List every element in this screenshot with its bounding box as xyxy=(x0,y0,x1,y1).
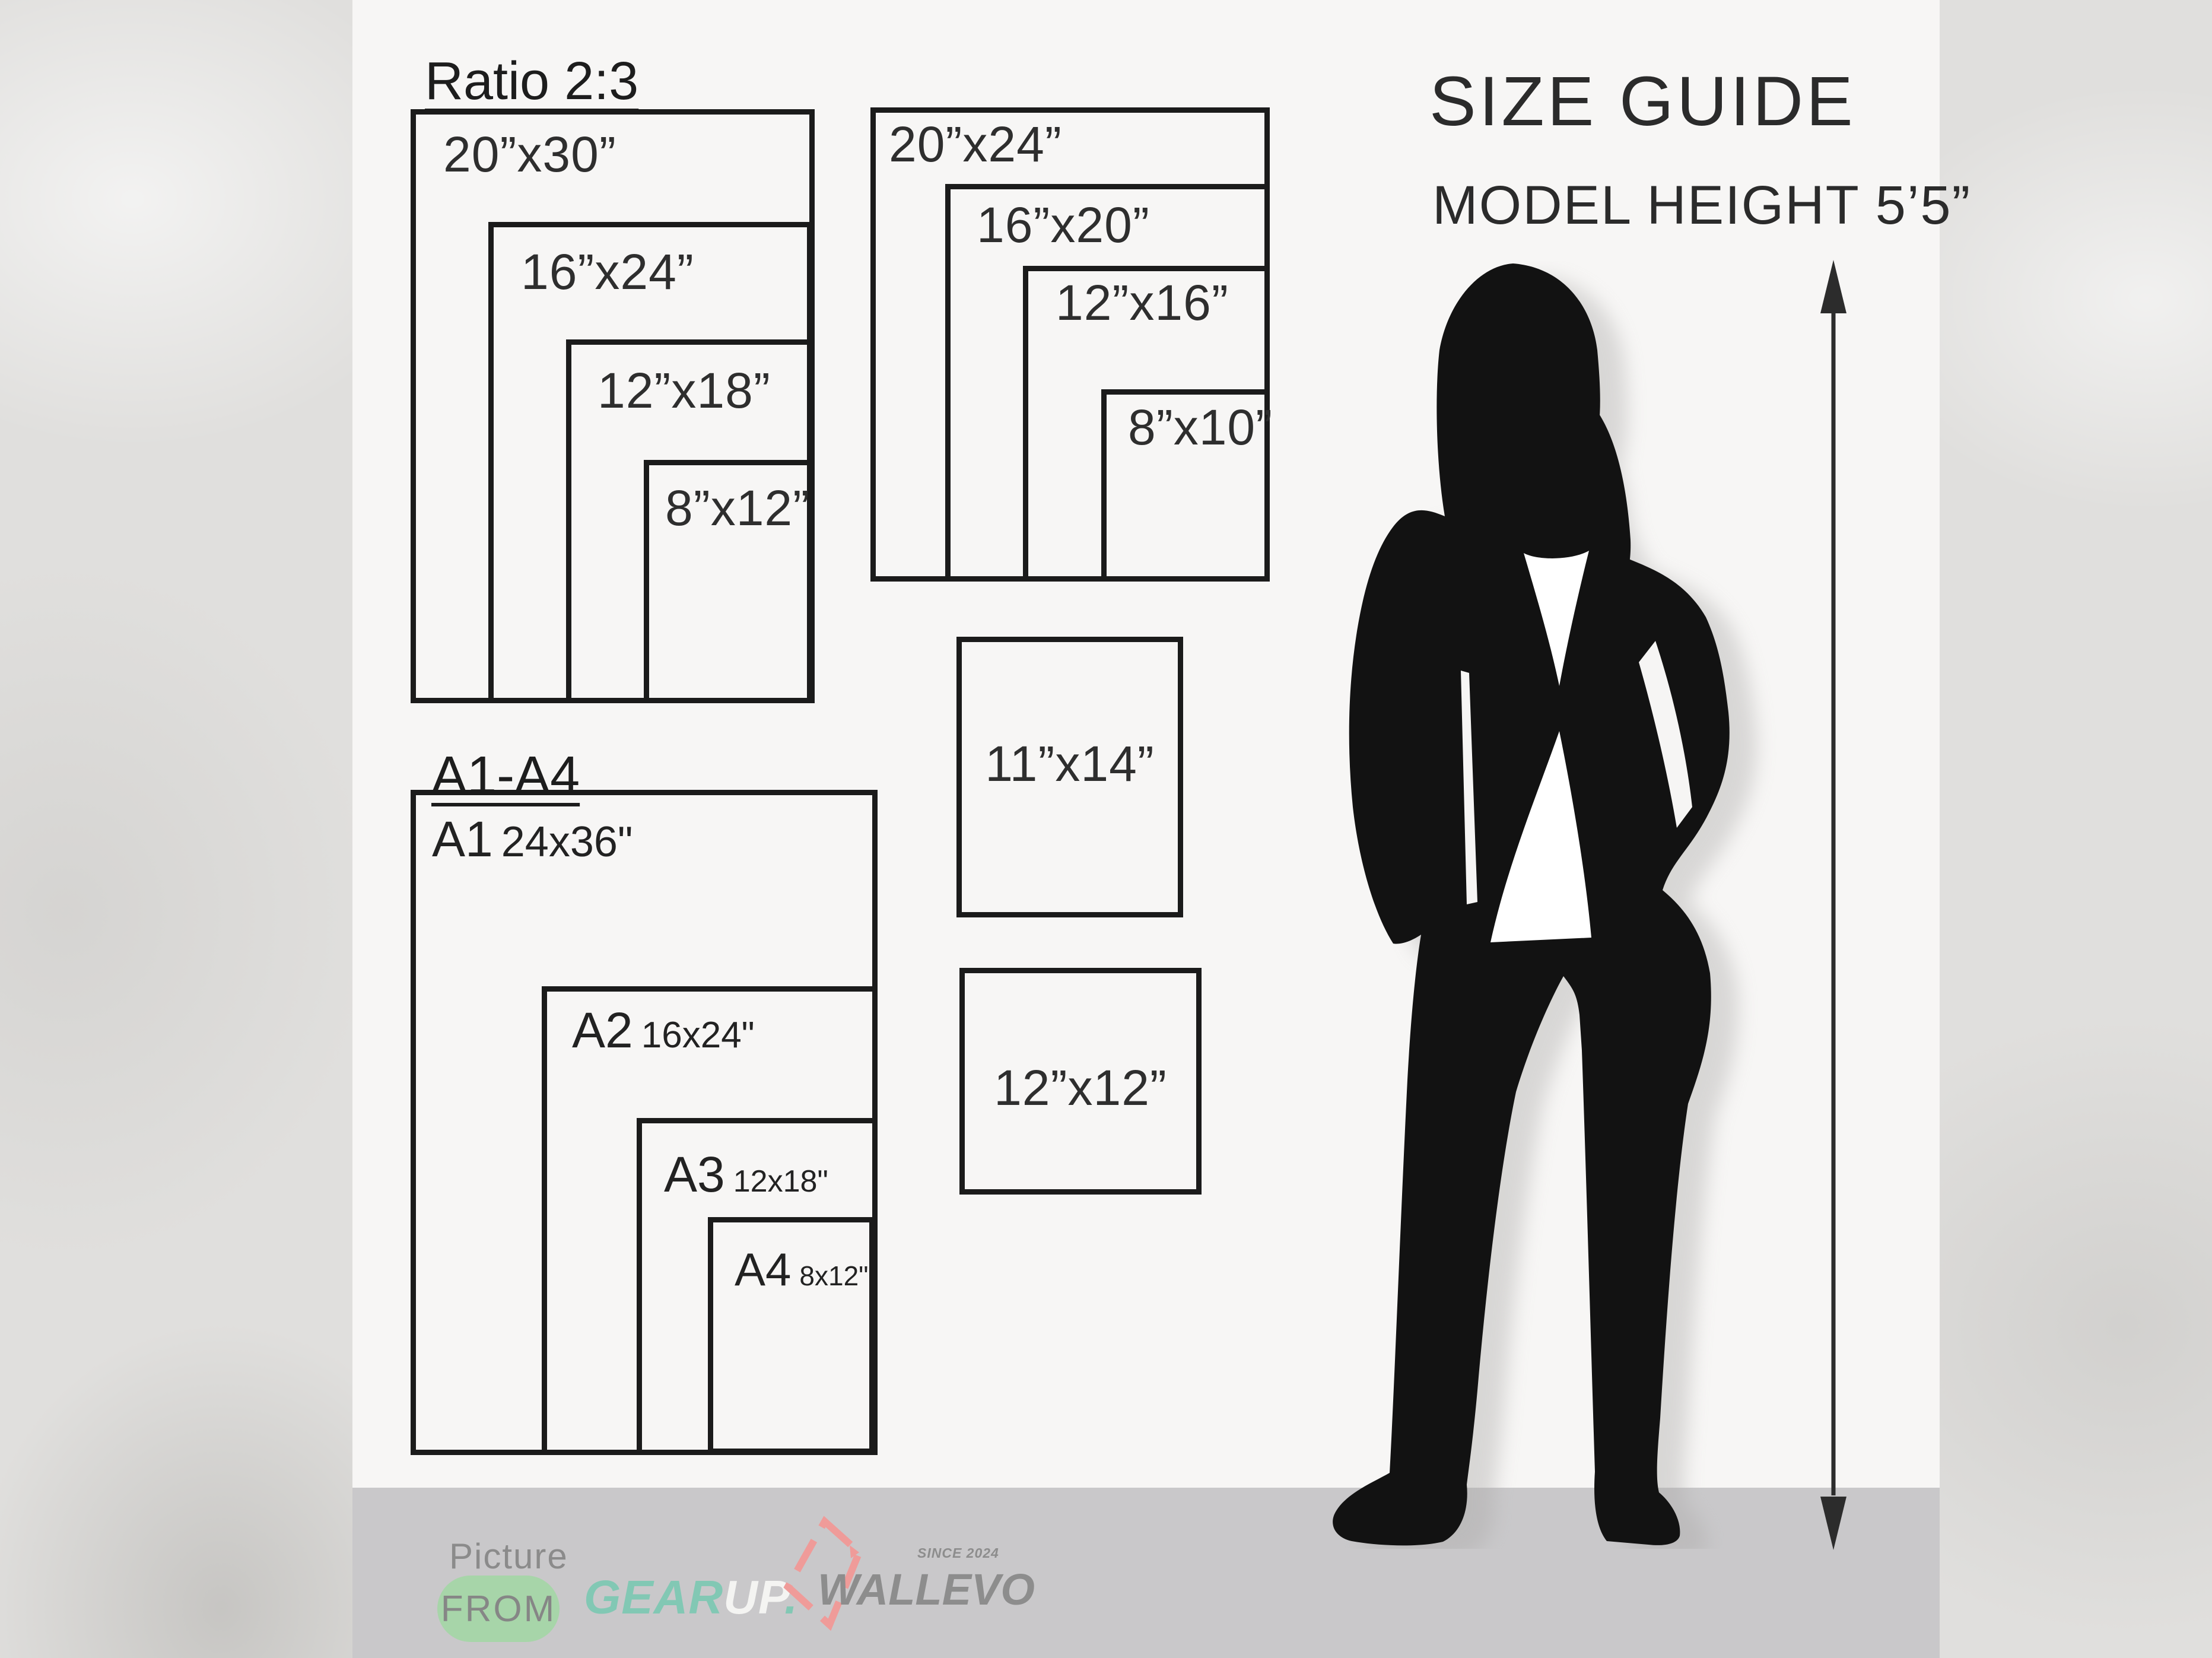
label-20x24: 20”x24” xyxy=(889,119,1062,169)
label-12x12: 12”x12” xyxy=(959,1063,1202,1113)
wallevo-since-text: SINCE 2024 xyxy=(917,1545,999,1561)
label-12x16: 12”x16” xyxy=(1056,278,1229,328)
size-guide-infographic: Ratio 2:3 20”x30” 16”x24” 12”x18” 8”x12”… xyxy=(0,0,2212,1658)
a1-size: 24x36" xyxy=(501,821,633,863)
label-a2: A2 16x24" xyxy=(572,1005,755,1055)
a3-code: A3 xyxy=(664,1149,725,1199)
label-8x12: 8”x12” xyxy=(665,483,810,533)
label-12x18: 12”x18” xyxy=(598,366,771,415)
a4-size: 8x12" xyxy=(799,1262,868,1289)
picture-label: Picture xyxy=(449,1536,568,1577)
a3-size: 12x18" xyxy=(733,1166,828,1197)
wallevo-logo: SINCE 2024 WALLEVO xyxy=(778,1514,980,1633)
label-11x14: 11”x14” xyxy=(956,739,1183,789)
label-20x30: 20”x30” xyxy=(443,129,616,179)
a2-code: A2 xyxy=(572,1005,633,1055)
a2-size: 16x24" xyxy=(641,1017,755,1054)
model-silhouette xyxy=(1323,261,1786,1549)
gearup-up-text: UP xyxy=(723,1571,784,1624)
label-16x20: 16”x20” xyxy=(977,200,1150,250)
label-a3: A3 12x18" xyxy=(664,1149,828,1199)
from-badge: FROM xyxy=(437,1576,560,1642)
gearup-logo: GEARUP. xyxy=(584,1570,798,1625)
label-a4: A4 8x12" xyxy=(735,1246,868,1292)
label-16x24: 16”x24” xyxy=(521,247,694,297)
label-8x10: 8”x10” xyxy=(1128,402,1273,452)
model-height-text: MODEL HEIGHT 5’5” xyxy=(1432,178,1971,233)
from-label: FROM xyxy=(441,1588,557,1630)
gearup-gear-text: GEAR xyxy=(584,1571,723,1624)
page-title: SIZE GUIDE xyxy=(1429,66,1856,136)
wallevo-brand-text: WALLEVO xyxy=(818,1564,1035,1615)
label-a1: A1 24x36" xyxy=(432,814,633,864)
height-arrow-icon xyxy=(1798,255,1869,1555)
a1-code: A1 xyxy=(432,814,493,864)
a4-code: A4 xyxy=(735,1246,791,1292)
ratio-2-3-title: Ratio 2:3 xyxy=(425,55,638,108)
